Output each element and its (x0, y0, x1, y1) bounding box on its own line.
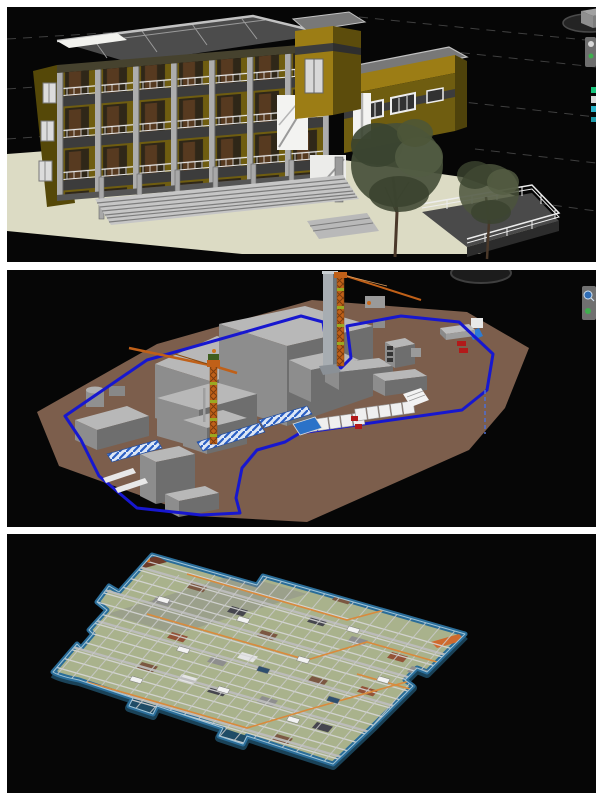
green-dot-icon (589, 54, 594, 59)
viewport-site-plan[interactable] (7, 270, 596, 527)
viewport-structural-deck[interactable] (7, 534, 596, 793)
viewcube-ring[interactable] (451, 270, 511, 283)
composite-page (0, 0, 600, 800)
zoom-icon (584, 291, 592, 299)
viewport-building-exterior[interactable] (7, 7, 596, 262)
navigation-toolbar[interactable] (585, 37, 596, 67)
navigation-toolbar[interactable] (582, 286, 596, 320)
green-dot-icon (585, 308, 591, 314)
sphere-icon (588, 41, 594, 47)
